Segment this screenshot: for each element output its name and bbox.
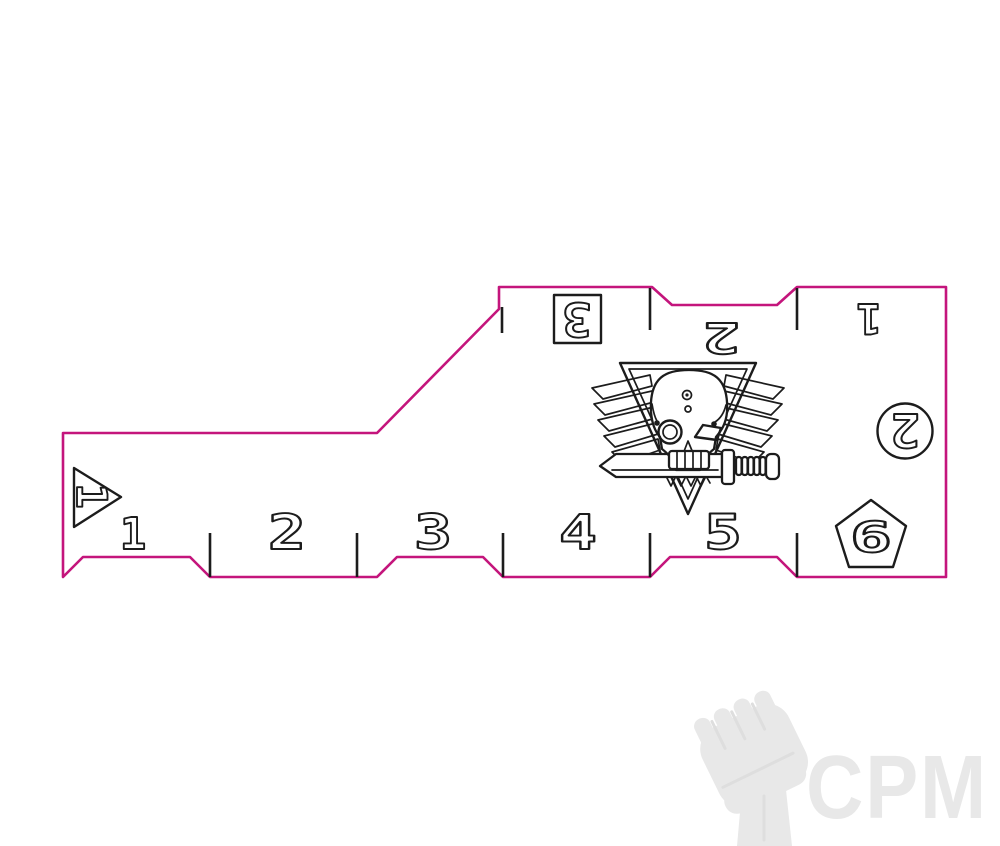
winged-skull-sword-emblem [592, 363, 784, 514]
measuring-gauge-drawing: 1 2 3 4 5 3 2 1 1 2 6 [0, 0, 1000, 846]
grip-rib [760, 457, 766, 475]
grip-rib [754, 457, 760, 475]
skull-teeth [669, 451, 709, 469]
left-wing [592, 375, 660, 463]
pentagon-marker-label: 6 [850, 513, 892, 562]
bottom-scale-label-4: 4 [559, 505, 597, 561]
top-scale: 3 2 1 [554, 292, 882, 362]
triangle-marker-label: 1 [67, 483, 116, 508]
grip-rib [742, 457, 748, 475]
skull-rivet-left [654, 420, 660, 426]
pentagon-marker: 6 [836, 500, 906, 567]
wing-feather [724, 375, 784, 399]
knife-guard [722, 450, 734, 484]
knife-pommel [766, 454, 779, 479]
circle-marker-label: 2 [890, 403, 920, 457]
gauge-template-canvas: 1 2 3 4 5 3 2 1 1 2 6 [0, 0, 1000, 846]
top-scale-label-3: 3 [562, 292, 592, 346]
bottom-scale-label-2: 2 [268, 505, 306, 561]
top-scale-label-1: 1 [856, 294, 881, 343]
top-scale-label-2: 2 [702, 313, 740, 362]
top-ticks [502, 288, 797, 333]
teeth-row [669, 451, 709, 469]
bottom-scale: 1 2 3 4 5 [120, 505, 742, 561]
bottom-scale-label-3: 3 [414, 505, 452, 561]
watermark-text: CPM [806, 738, 988, 838]
forehead-stud-dot [685, 393, 688, 396]
cut-outline [63, 287, 946, 577]
bottom-scale-label-5: 5 [704, 505, 742, 561]
circle-marker: 2 [878, 403, 933, 459]
knife-grip [736, 457, 766, 475]
grip-rib [736, 457, 742, 475]
grip-rib [748, 457, 754, 475]
fist-icon [686, 683, 817, 846]
wing-feather [592, 375, 652, 399]
watermark: CPM [686, 683, 988, 846]
triangle-marker: 1 [67, 468, 121, 527]
bottom-scale-label-1: 1 [120, 509, 147, 560]
